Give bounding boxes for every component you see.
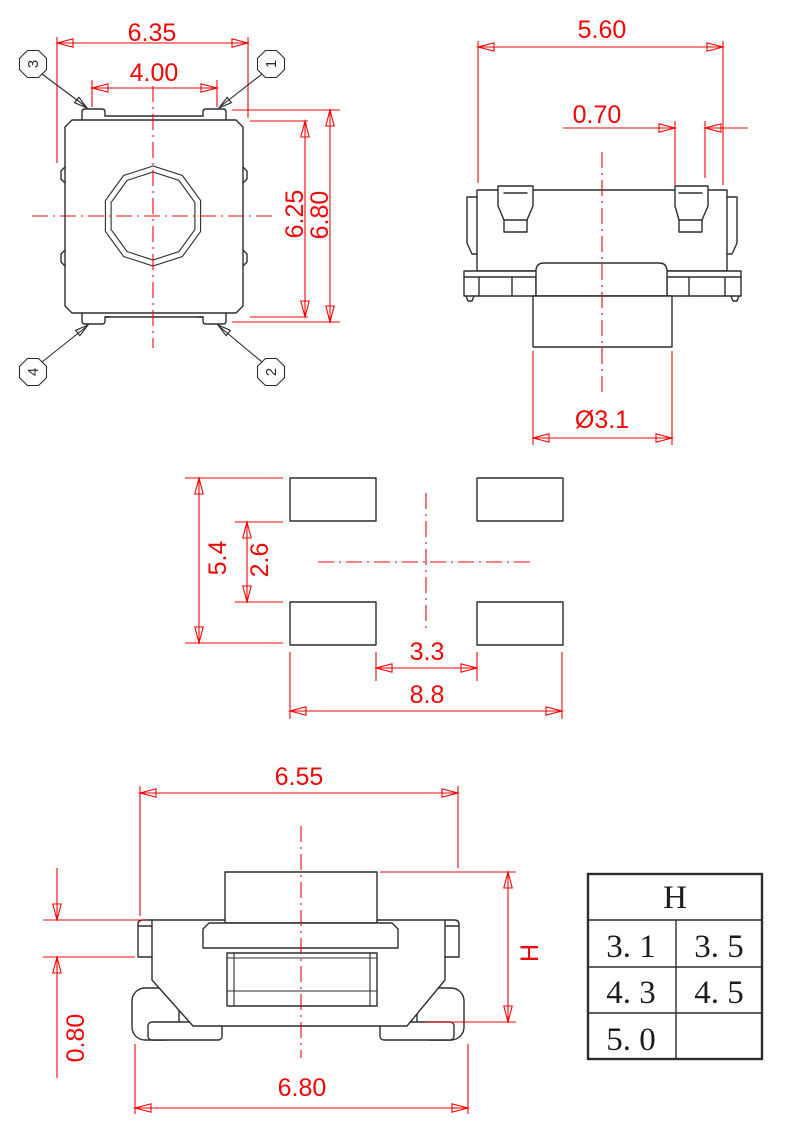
pad-top-right — [477, 478, 563, 521]
land-pattern: 5.4 2.6 3.3 8.8 — [185, 478, 563, 719]
dim-label-0-70: 0.70 — [573, 101, 622, 129]
dim-label-6-35: 6.35 — [128, 19, 177, 47]
dim-top-heights: 6.25 6.80 — [232, 110, 340, 322]
dim-top-lug-spacing: 4.00 — [92, 59, 217, 107]
height-table-cell-1-0: 4. 3 — [606, 975, 656, 1011]
dim-label-stem-diameter: Ø3.1 — [575, 406, 629, 434]
technical-drawing-canvas: 6.35 4.00 6.25 6.80 — [0, 0, 790, 1138]
dim-label-2-6: 2.6 — [246, 543, 274, 578]
front-view: 6.55 0.80 H 6.80 — [43, 763, 544, 1114]
height-table-cell-1-1: 4. 5 — [694, 975, 744, 1011]
pin-label-3: 3 — [25, 60, 42, 68]
dim-land-vertical: 5.4 2.6 — [185, 478, 283, 643]
dim-label-6-25: 6.25 — [281, 190, 309, 239]
dim-side-stem-diameter: Ø3.1 — [533, 351, 672, 445]
dim-label-4-00: 4.00 — [130, 59, 179, 87]
height-table: H 3. 1 3. 5 4. 3 4. 5 5. 0 — [588, 874, 762, 1059]
dim-front-lip-height: 0.80 — [43, 868, 147, 1078]
dim-label-5-4: 5.4 — [204, 541, 232, 576]
dim-land-horizontal: 3.3 8.8 — [290, 638, 562, 719]
technical-drawing-page: 6.35 4.00 6.25 6.80 — [0, 0, 790, 1138]
dim-label-6-80-bottom: 6.80 — [278, 1074, 327, 1102]
dim-label-3-3: 3.3 — [410, 638, 445, 666]
pad-bottom-left — [290, 602, 376, 645]
pin-label-1: 1 — [263, 60, 280, 68]
dim-label-0-80: 0.80 — [62, 1014, 90, 1063]
dim-label-8-8: 8.8 — [410, 681, 445, 709]
pin-label-2: 2 — [263, 368, 280, 376]
height-table-cell-0-1: 3. 5 — [694, 929, 744, 965]
dim-label-h: H — [516, 944, 544, 962]
side-view: 5.60 0.70 Ø3.1 — [464, 16, 748, 445]
dim-label-5-60: 5.60 — [578, 16, 627, 44]
height-table-cell-2-0: 5. 0 — [606, 1022, 656, 1058]
dim-label-6-80-top: 6.80 — [306, 191, 334, 240]
pad-top-left — [290, 478, 376, 521]
pad-bottom-right — [477, 602, 563, 645]
height-table-header: H — [663, 880, 687, 916]
top-view: 6.35 4.00 6.25 6.80 — [20, 19, 341, 386]
dim-side-lug-width: 0.70 — [563, 101, 748, 185]
front-view-body-outline — [132, 872, 464, 1040]
pin-label-4: 4 — [25, 368, 42, 376]
dim-label-6-55: 6.55 — [275, 763, 324, 791]
height-table-cell-0-0: 3. 1 — [606, 929, 656, 965]
